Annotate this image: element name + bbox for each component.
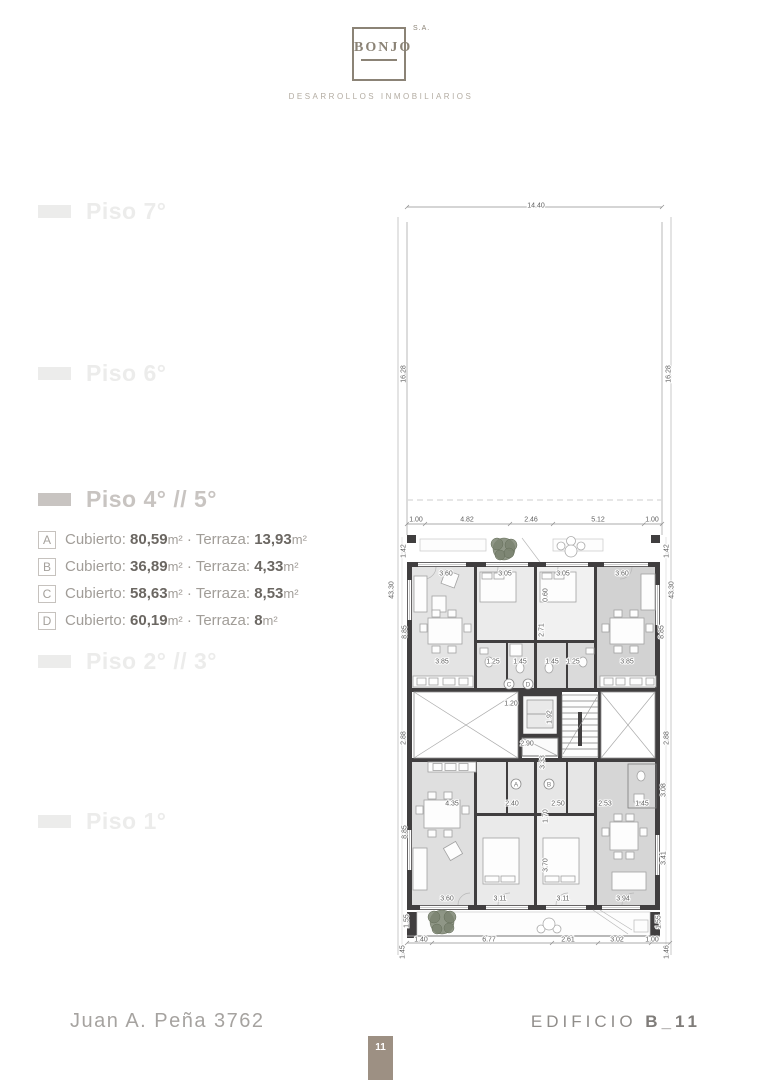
building-label: EDIFICIO: [531, 1012, 637, 1031]
dimension-label: 3.33: [540, 755, 547, 769]
dimension-label: 16.28: [401, 365, 408, 383]
building-title: EDIFICIO B_11: [531, 1012, 701, 1032]
building-core: [414, 692, 655, 758]
dimension-label: 2.53: [598, 801, 612, 808]
dimension-label: 1.00: [645, 937, 659, 944]
dimension-label: 1.42: [664, 544, 671, 558]
unit-letter-badge: C: [38, 585, 56, 603]
dimension-label: 1.45: [400, 945, 407, 959]
dimension-label: 1.45: [513, 659, 527, 666]
dimension-label: 1.00: [409, 517, 423, 524]
dimension-label: 1.25: [566, 659, 580, 666]
unit-areas-text: Cubierto: 80,59m² · Terraza: 13,93m²: [65, 531, 307, 548]
unit-marker-letter: A: [514, 781, 519, 788]
dimension-label: 16.28: [666, 365, 673, 383]
dimension-label: 3.08: [661, 783, 668, 797]
floor-item-piso-6[interactable]: Piso 6°: [38, 360, 166, 386]
unit-marker-letter: D: [526, 681, 531, 688]
unit-letter-badge: B: [38, 558, 56, 576]
dimension-label: 6.77: [482, 937, 496, 944]
unit-row-B: BCubierto: 36,89m² · Terraza: 4,33m²: [38, 553, 307, 580]
dimension-label: 2.88: [401, 731, 408, 745]
stairs: [562, 695, 598, 757]
unit-letter-badge: D: [38, 612, 56, 630]
dimension-label: 3.11: [556, 896, 569, 903]
floor-swatch: [38, 493, 71, 506]
dimension-label: 14.40: [527, 203, 545, 210]
unit-row-C: CCubierto: 58,63m² · Terraza: 8,53m²: [38, 580, 307, 607]
floor-label: Piso 6°: [86, 360, 166, 387]
dimension-label: 8.85: [659, 625, 666, 639]
dimension-label: 3.70: [543, 858, 550, 872]
floor-item-piso-4-5[interactable]: Piso 4° // 5°: [38, 486, 217, 512]
floor-label: Piso 2° // 3°: [86, 648, 217, 675]
dimension-label: 1.40: [414, 937, 428, 944]
dimension-label: 43.30: [389, 581, 396, 599]
dimension-label: 2.88: [664, 731, 671, 745]
floor-item-piso-1[interactable]: Piso 1°: [38, 808, 166, 834]
dimension-label: 3.60: [439, 571, 453, 578]
logo-suffix: S.A.: [413, 25, 430, 32]
page-number-tab: 11: [368, 1036, 393, 1080]
building-code: B_11: [645, 1012, 701, 1031]
dimension-label: 3.94: [616, 896, 630, 903]
floor-label: Piso 4° // 5°: [86, 486, 217, 513]
dimension-label: 4.82: [460, 517, 474, 524]
company-name: BONJO: [354, 40, 404, 56]
dimension-label: 3.11: [493, 896, 506, 903]
unit-row-A: ACubierto: 80,59m² · Terraza: 13,93m²: [38, 526, 307, 553]
dimension-label: 4.35: [445, 801, 459, 808]
floor-label: Piso 7°: [86, 198, 166, 225]
dimension-label: 2.40: [505, 801, 519, 808]
dimension-label: 1.45: [635, 801, 649, 808]
unit-row-D: DCubierto: 60,19m² · Terraza: 8m²: [38, 607, 307, 634]
unit-marker-letter: C: [507, 681, 512, 688]
dimension-label: 1.45: [545, 659, 559, 666]
dimension-label: 2.50: [551, 801, 565, 808]
floor-swatch: [38, 367, 71, 380]
dimension-label: 3.85: [435, 659, 449, 666]
dimension-label: 3.41: [661, 851, 668, 865]
dimension-label: 3.05: [556, 571, 570, 578]
dimension-label: 8.85: [402, 825, 409, 839]
dimension-label: 2.71: [539, 623, 546, 637]
unit-letter-badge: A: [38, 531, 56, 549]
dimension-label: 1.25: [486, 659, 500, 666]
dimension-label: 1.00: [645, 517, 659, 524]
dimension-label: 2.90: [520, 741, 534, 748]
unit-areas-text: Cubierto: 36,89m² · Terraza: 4,33m²: [65, 558, 299, 575]
dimension-label: 3.60: [615, 571, 629, 578]
dimension-label: 1.42: [401, 544, 408, 558]
dimension-label: 3.02: [610, 937, 624, 944]
dimension-label: 5.12: [591, 517, 605, 524]
unit-areas-text: Cubierto: 58,63m² · Terraza: 8,53m²: [65, 585, 299, 602]
floor-swatch: [38, 205, 71, 218]
floor-item-piso-7[interactable]: Piso 7°: [38, 198, 166, 224]
tree-icon: [491, 538, 517, 560]
dimension-label: 8.85: [402, 625, 409, 639]
dimension-label: 1.46: [664, 945, 671, 959]
floor-swatch: [38, 815, 71, 828]
dimension-label: 43.30: [669, 581, 676, 599]
floor-item-piso-2-3[interactable]: Piso 2° // 3°: [38, 648, 217, 674]
logo-underline: [361, 59, 397, 61]
floor-label: Piso 1°: [86, 808, 166, 835]
tree-icon-bottom: [428, 910, 456, 934]
company-logo: BONJO: [352, 27, 406, 81]
dimension-label: 3.60: [440, 896, 454, 903]
dimension-label: 2.46: [524, 517, 538, 524]
dimension-label: 1.92: [547, 710, 554, 724]
dimension-label: 1.20: [504, 701, 518, 708]
dimension-label: 3.85: [620, 659, 634, 666]
dimension-label: 2.61: [561, 937, 575, 944]
unit-marker-letter: B: [547, 781, 551, 788]
unit-list: ACubierto: 80,59m² · Terraza: 13,93m²BCu…: [38, 526, 307, 634]
floor-swatch: [38, 655, 71, 668]
floor-plan-drawing: 14.4016.2816.281.004.822.465.121.001.421…: [380, 190, 690, 970]
brochure-page: S.A. BONJO DESARROLLOS INMOBILIARIOS Pis…: [0, 0, 763, 1080]
dimension-label: 1.55: [656, 915, 663, 929]
project-address: Juan A. Peña 3762: [70, 1010, 265, 1033]
company-tagline: DESARROLLOS INMOBILIARIOS: [281, 92, 481, 101]
dimension-label: 3.05: [498, 571, 512, 578]
unit-areas-text: Cubierto: 60,19m² · Terraza: 8m²: [65, 612, 278, 629]
dimension-label: 0.60: [543, 588, 550, 602]
dimension-label: 1.70: [543, 809, 550, 823]
dimension-label: 1.55: [404, 914, 411, 928]
